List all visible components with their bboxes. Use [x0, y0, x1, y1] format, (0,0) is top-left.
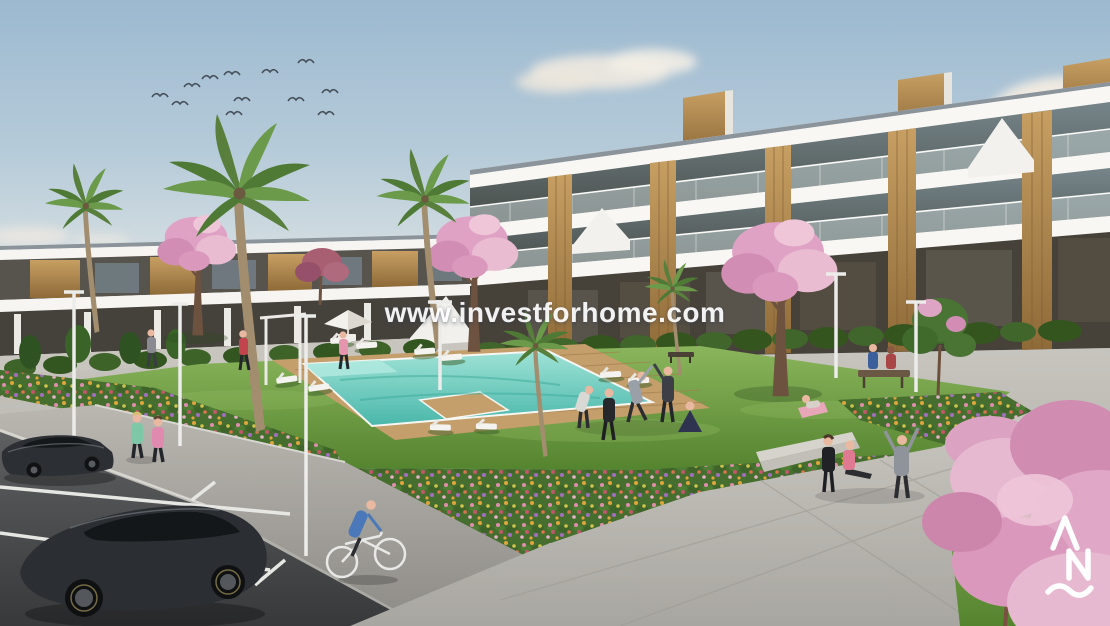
car-sedan	[2, 435, 116, 486]
cyclist-head	[366, 500, 376, 510]
scene-render	[0, 0, 1110, 626]
render-image: www.investforhome.com	[0, 0, 1110, 626]
